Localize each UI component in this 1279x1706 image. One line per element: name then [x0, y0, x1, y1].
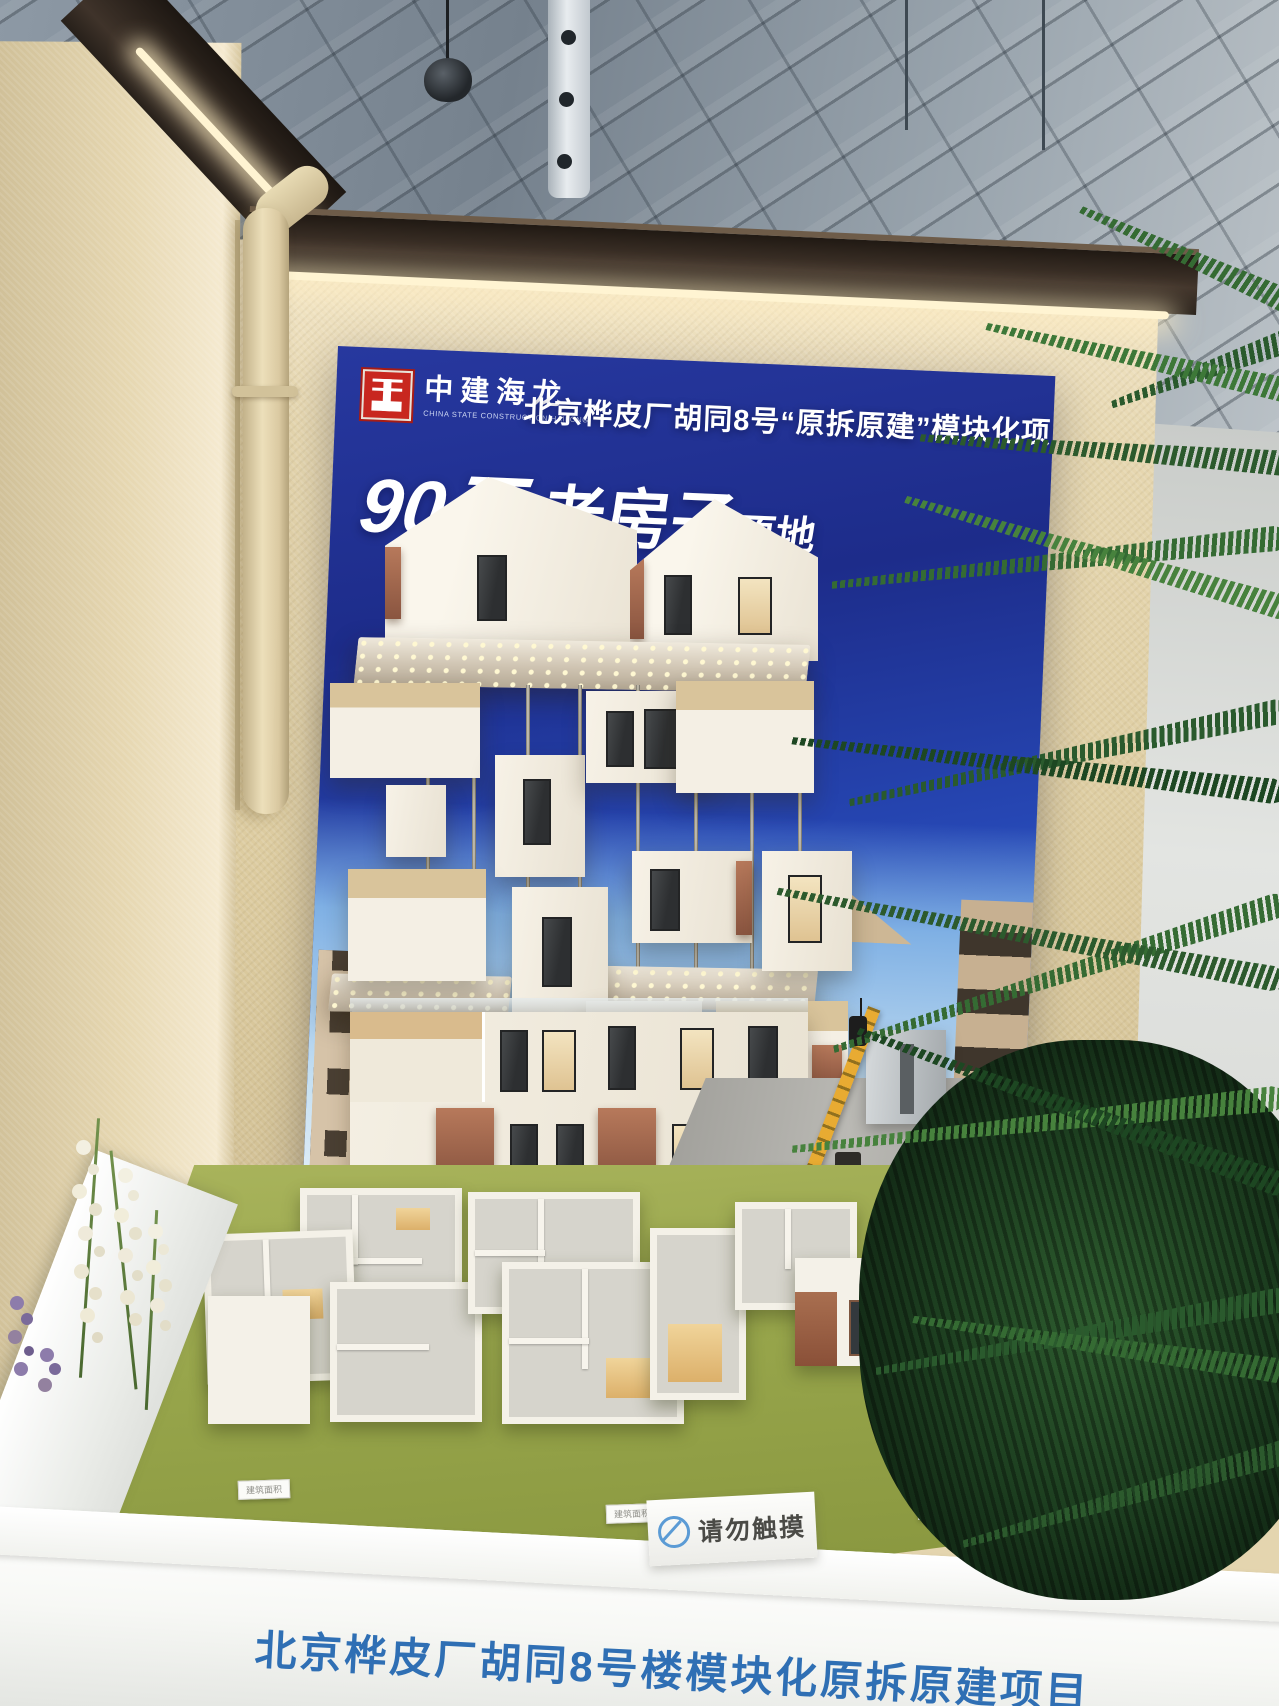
- unit-wall: [509, 1338, 589, 1344]
- model-window-lit: [788, 875, 822, 943]
- duct-vent: [561, 30, 576, 45]
- placard-label: 建筑面积: [614, 1508, 650, 1519]
- pipe-clamp: [232, 386, 298, 397]
- ceiling-hanger-rod: [1042, 0, 1045, 150]
- unit-wall: [337, 1344, 429, 1350]
- flower-blooms: [148, 1224, 163, 1239]
- unit-model-closed: [208, 1296, 310, 1424]
- purple-flower: [40, 1348, 54, 1362]
- model-window-lit: [542, 1030, 576, 1092]
- model-module-open: [348, 869, 486, 981]
- flower-blooms: [76, 1140, 91, 1155]
- unit-model: [330, 1282, 482, 1422]
- model-module: [632, 851, 752, 943]
- ceiling-hanger-rod: [905, 0, 908, 130]
- no-touch-label: 请勿触摸: [697, 1507, 807, 1549]
- exhibition-photo: 中建海龙 CHINA STATE CONSTRUCTION HAILONG 北京…: [0, 0, 1279, 1706]
- no-touch-sign: 请勿触摸: [646, 1492, 817, 1567]
- model-copper-panel: [736, 861, 752, 935]
- unit-lit-room: [606, 1358, 650, 1398]
- pedestal-project-title: 北京桦皮厂胡同8号楼模块化原拆原建项目: [253, 1616, 1091, 1706]
- unit-wall: [582, 1269, 588, 1369]
- wall-pipe: [243, 208, 289, 814]
- area-placard: 建筑面积: [238, 1479, 291, 1500]
- model-window: [608, 1026, 636, 1090]
- flower-blooms: [118, 1168, 133, 1183]
- unit-lit-room: [396, 1208, 430, 1230]
- model-glass-railing: [350, 998, 808, 1012]
- model-module-open: [676, 681, 814, 793]
- purple-flower: [10, 1296, 24, 1310]
- model-window: [664, 575, 692, 635]
- model-roof-house-left: [385, 477, 637, 649]
- no-touch-icon: [657, 1515, 691, 1549]
- pendant-lamp: [424, 58, 472, 102]
- model-window: [606, 711, 634, 767]
- model-window: [644, 709, 678, 769]
- model-module: [762, 851, 852, 971]
- model-window: [542, 917, 572, 987]
- duct-vent: [557, 154, 572, 169]
- duct-vent: [559, 92, 574, 107]
- model-module: [386, 785, 446, 857]
- cscec-red-square-icon: [361, 369, 413, 421]
- model-open-floor: [350, 1012, 485, 1102]
- model-roof-house-right: [630, 499, 818, 661]
- unit-model: [650, 1228, 746, 1400]
- model-copper-panel: [385, 547, 401, 619]
- wall-conduit: [235, 220, 240, 810]
- model-window: [650, 869, 680, 931]
- model-module: [495, 755, 585, 877]
- model-window: [477, 555, 507, 621]
- model-window: [500, 1030, 528, 1092]
- unit-copper-side: [795, 1292, 837, 1366]
- unit-floor: [337, 1289, 475, 1415]
- placard-label: 建筑面积: [246, 1484, 282, 1495]
- model-copper-panel: [630, 559, 644, 639]
- model-module-open: [330, 683, 480, 778]
- unit-wall: [785, 1209, 791, 1269]
- model-window: [523, 779, 551, 845]
- pendant-lamp-cord: [446, 0, 449, 62]
- unit-wall: [352, 1258, 422, 1264]
- unit-lit-room: [668, 1324, 722, 1382]
- unit-wall: [475, 1250, 545, 1256]
- model-window-lit: [738, 577, 772, 635]
